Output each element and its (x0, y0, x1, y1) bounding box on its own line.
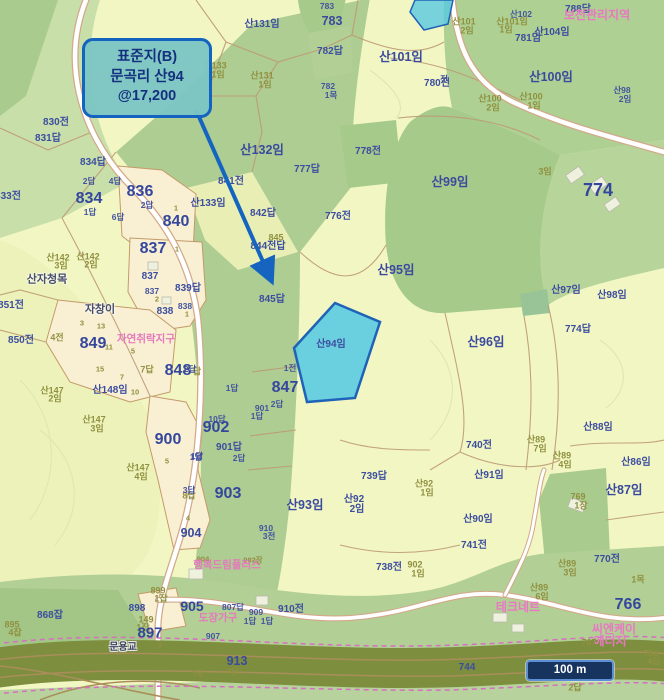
callout-box: 표준지(B) 문곡리 산94 @17,200 (82, 38, 212, 118)
scale-bar: 100 m (526, 660, 614, 681)
callout-line-type: 표준지(B) (87, 48, 207, 68)
callout-line-parcel: 문곡리 산94 (87, 68, 207, 88)
map-canvas[interactable]: 783산131임783782답7821목산101임780전산1331임산1311… (0, 0, 664, 700)
scale-bar-label: 100 m (554, 665, 587, 677)
callout-line-price: @17,200 (87, 87, 207, 107)
